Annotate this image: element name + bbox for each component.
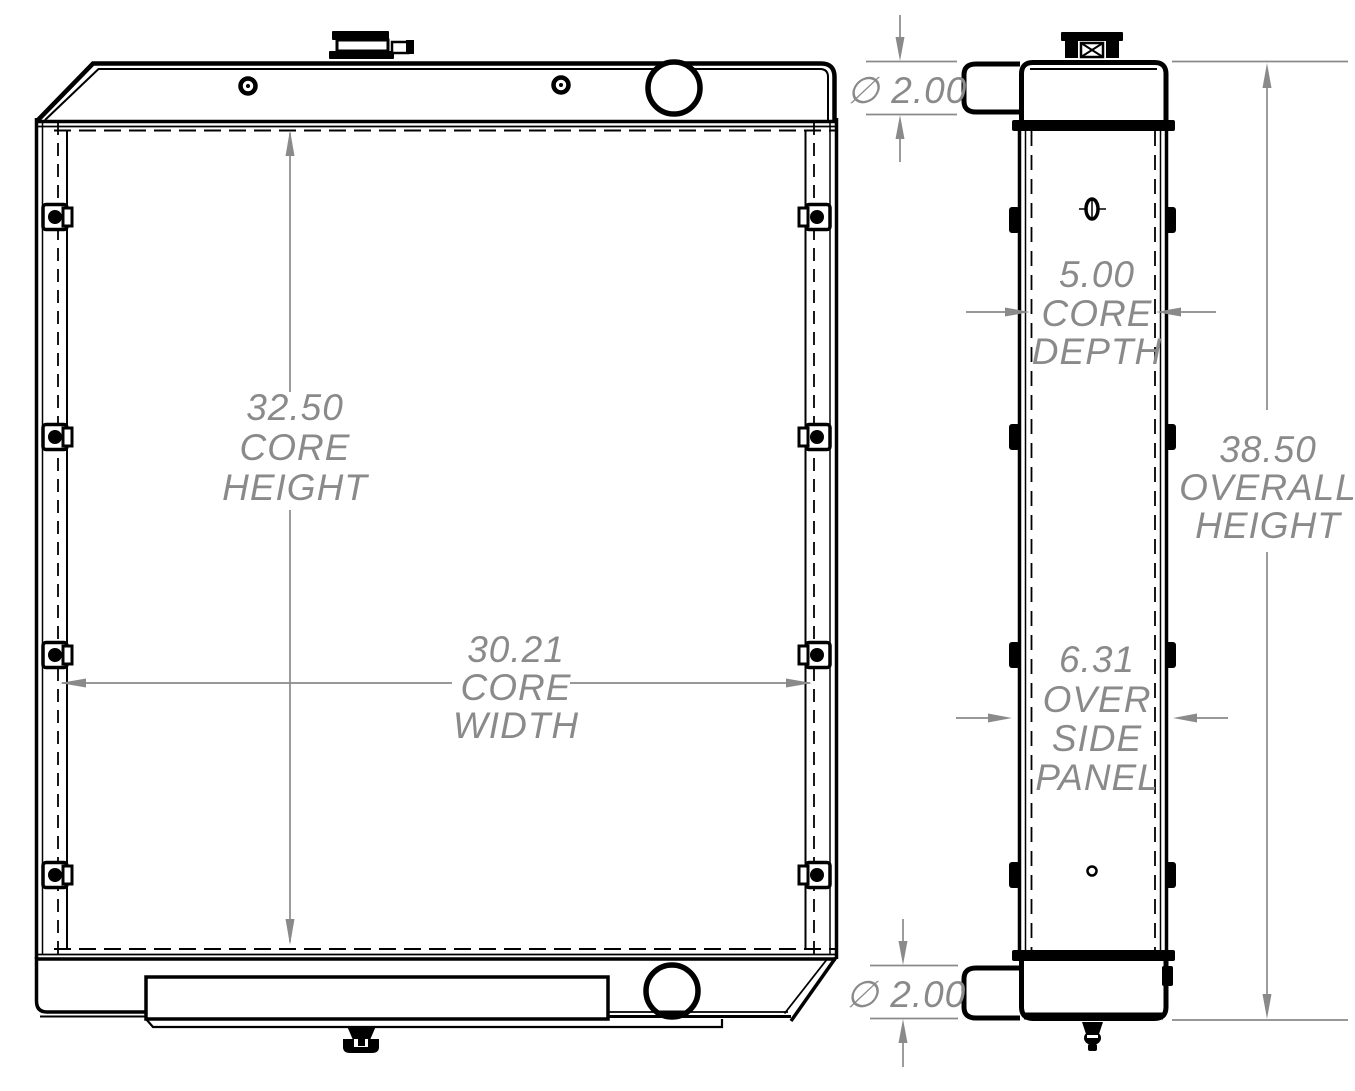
dim-core-depth-label1: CORE	[1042, 293, 1153, 334]
side-panel-left	[37, 118, 68, 959]
dim-core-depth-label2: DEPTH	[1032, 331, 1162, 372]
drain-petcock-front	[343, 1026, 379, 1053]
dim-overall-height: 38.50 OVERALL HEIGHT	[1172, 62, 1355, 1021]
bolt-clip	[43, 863, 72, 888]
dim-over-side-panel-label1: OVER	[1043, 679, 1152, 720]
dim-core-width-label1: CORE	[461, 667, 572, 708]
dim-top-port-diameter-value: ∅ 2.00	[847, 70, 968, 111]
bolt-clip	[799, 205, 830, 230]
bolt-clip	[799, 425, 830, 450]
dim-overall-height-value: 38.50	[1219, 429, 1317, 470]
dim-core-height: 32.50 CORE HEIGHT	[222, 130, 369, 945]
small-hole-bottom	[1088, 867, 1097, 876]
dim-bottom-port-diameter-value: ∅ 2.00	[846, 974, 967, 1015]
dim-core-depth-value: 5.00	[1059, 254, 1135, 295]
dim-top-port-diameter: ∅ 2.00	[847, 15, 968, 162]
bolt-clip	[43, 205, 72, 230]
outlet-pipe-side	[964, 968, 1020, 1018]
dim-core-height-label2: HEIGHT	[222, 467, 369, 508]
dim-core-width-value: 30.21	[467, 629, 565, 670]
dim-bottom-port-diameter: ∅ 2.00	[846, 919, 967, 1067]
bottom-outlet-hole	[646, 965, 698, 1017]
top-tank-side	[1012, 63, 1175, 132]
drain-petcock-side	[1082, 1022, 1103, 1051]
bolt-clip	[799, 643, 830, 668]
front-view	[36, 31, 837, 1053]
bottom-tank-side	[1012, 950, 1175, 1051]
slot-hole-top	[1079, 199, 1106, 219]
top-tank-front	[36, 64, 836, 131]
dim-core-height-value: 32.50	[246, 387, 344, 428]
bolt-clip	[799, 863, 830, 888]
side-view	[964, 32, 1176, 1051]
dim-over-side-panel: 6.31 OVER SIDE PANEL	[956, 639, 1228, 798]
radiator-cap-front	[329, 31, 414, 59]
radiator-cap-side	[1061, 32, 1123, 58]
inlet-pipe-side	[964, 64, 1020, 112]
dim-overall-height-label1: OVERALL	[1179, 467, 1355, 508]
filler-neck-hole	[648, 62, 700, 114]
dim-overall-height-label2: HEIGHT	[1195, 505, 1342, 546]
bolt-clip	[43, 643, 72, 668]
dim-core-height-label1: CORE	[240, 427, 351, 468]
dim-core-width-label2: WIDTH	[453, 705, 579, 746]
bottom-tank-front	[36, 949, 836, 1053]
dim-over-side-panel-label2: SIDE	[1052, 718, 1143, 759]
side-panel-right	[806, 118, 837, 959]
radiator-technical-drawing: 32.50 CORE HEIGHT 30.21 CORE WIDTH ∅ 2.0…	[0, 0, 1355, 1091]
dim-core-width: 30.21 CORE WIDTH	[60, 629, 812, 746]
bolt-clip	[43, 425, 72, 450]
mounting-channel	[146, 977, 608, 1019]
dim-over-side-panel-label3: PANEL	[1035, 757, 1159, 798]
dim-over-side-panel-value: 6.31	[1059, 639, 1135, 680]
panel-bolt-clips	[43, 205, 830, 888]
dim-core-depth: 5.00 CORE DEPTH	[966, 254, 1216, 372]
